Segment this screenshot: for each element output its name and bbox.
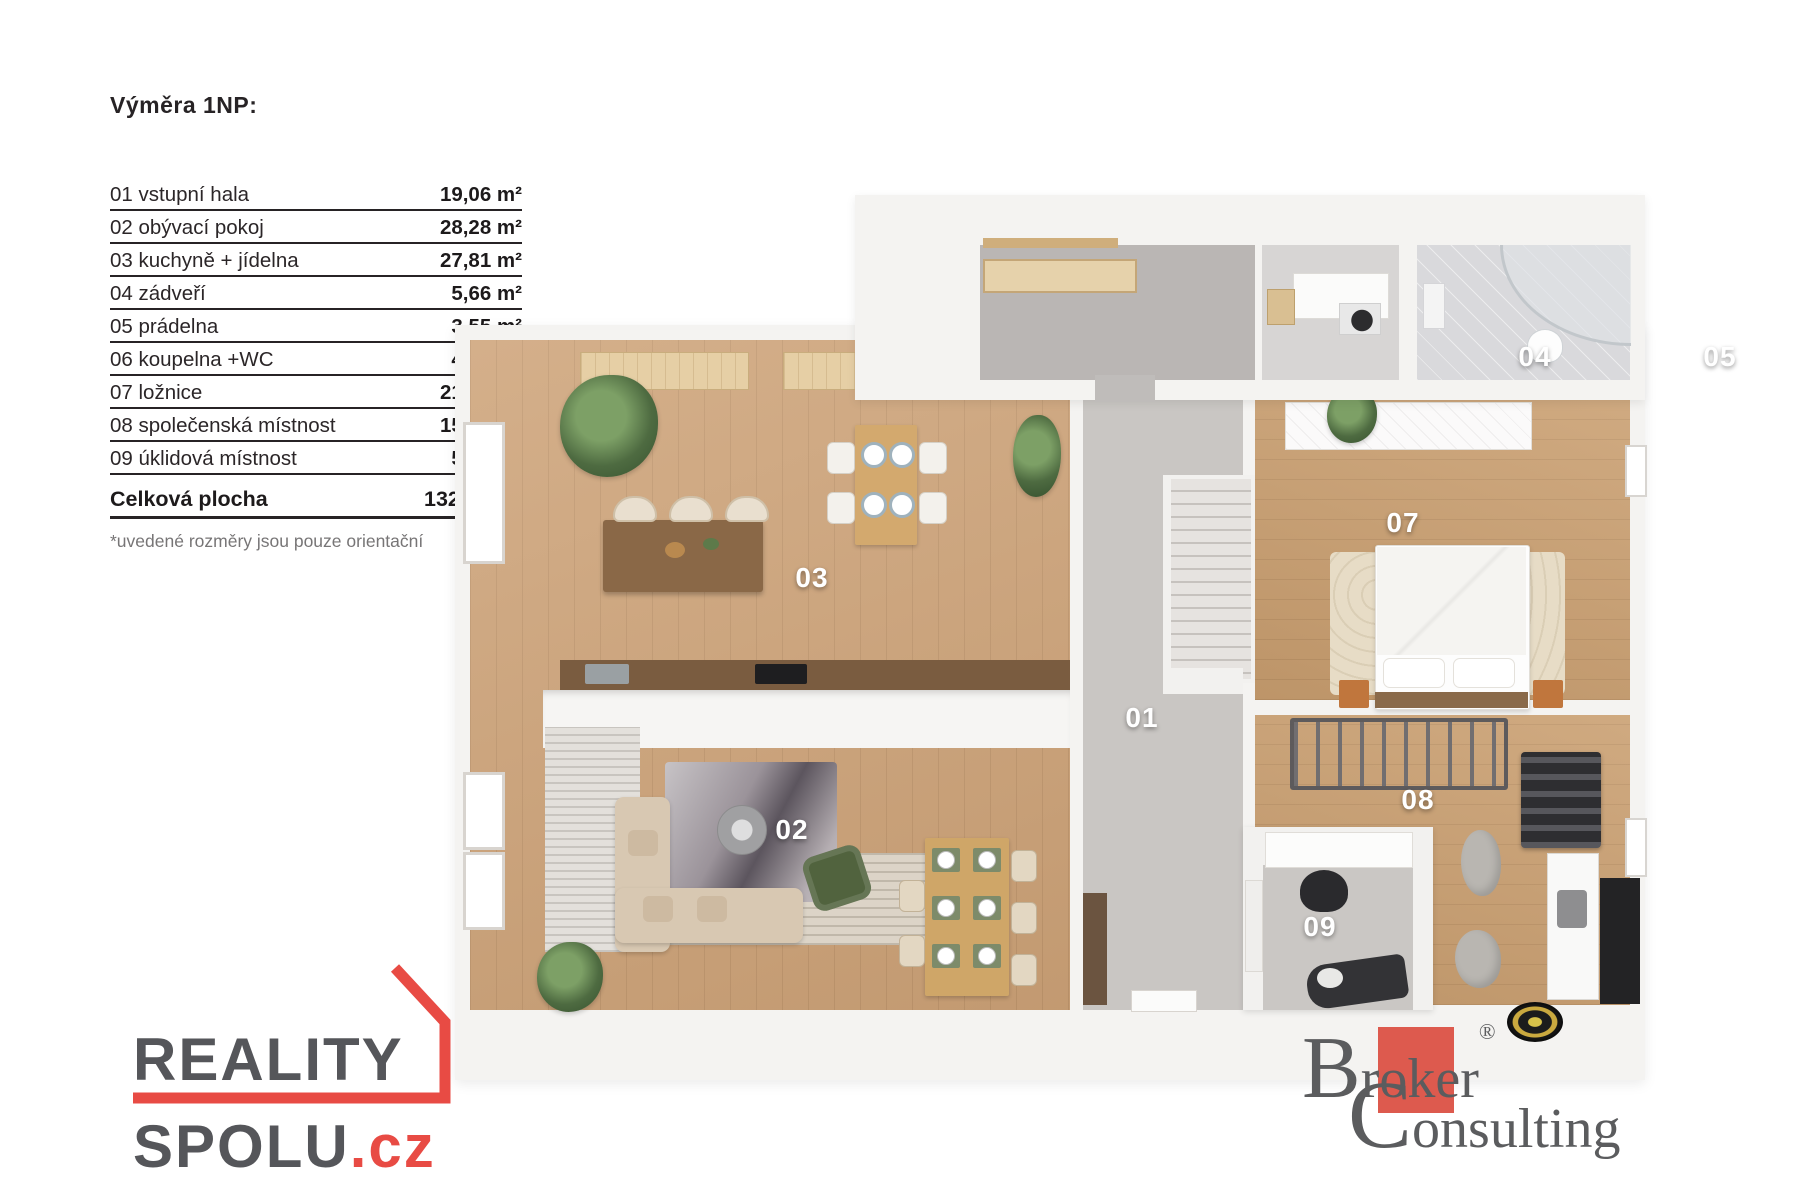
floor-plan: 04 05 06 01 02 03 07 08 09 [455, 190, 1645, 1085]
room-number-04: 04 [1518, 341, 1551, 373]
room-number-09: 09 [1303, 911, 1336, 943]
placemat [932, 896, 960, 920]
dining-chair [827, 492, 855, 524]
cushion [697, 896, 727, 922]
shelf [1245, 880, 1263, 972]
room-label-text: 01 vstupní hala [110, 183, 249, 207]
bathroom-sink [1423, 283, 1445, 329]
bench [983, 259, 1137, 293]
room-label-text: 08 společenská místnost [110, 414, 336, 438]
dining-chair [899, 880, 925, 912]
cooktop [755, 664, 807, 684]
window [1625, 818, 1647, 877]
plate [889, 492, 915, 518]
hamper [1267, 289, 1295, 325]
room-number-03: 03 [795, 562, 828, 594]
legend-title: Výměra 1NP: [110, 92, 257, 119]
staircase [1163, 475, 1255, 683]
entry-strip-walls: 04 05 06 [855, 195, 1645, 400]
room-number-07: 07 [1386, 507, 1419, 539]
ceiling-fan [717, 805, 767, 855]
wardrobe [1285, 402, 1532, 450]
nightstand [1533, 680, 1563, 708]
plate [861, 442, 887, 468]
bike-seat [1317, 968, 1343, 988]
window [1625, 445, 1647, 497]
hall-console [1083, 893, 1107, 1005]
registered-mark: ® [1479, 1019, 1496, 1044]
punch-pad [1557, 890, 1587, 928]
total-label: Celková plocha [110, 487, 268, 512]
dumbbell-rack [1521, 752, 1601, 848]
logo-word-spolu: SPOLU.cz [133, 1112, 436, 1181]
placemat [973, 944, 1001, 968]
kitchen-island [603, 520, 763, 592]
window [463, 772, 505, 850]
fruit-bowl [665, 542, 685, 558]
dining-chair [1011, 954, 1037, 986]
stair-landing [1163, 668, 1243, 694]
plate [861, 492, 887, 518]
logo-word-reality: REALITY [133, 1025, 404, 1094]
room-number-08: 08 [1401, 784, 1434, 816]
pillow [1453, 658, 1515, 688]
coat-rack [983, 238, 1118, 248]
room-label-text: 03 kuchyně + jídelna [110, 249, 299, 273]
dining-chair [827, 442, 855, 474]
kitchen-sink [585, 664, 629, 684]
room-label-text: 06 koupelna +WC [110, 348, 274, 372]
logo-word-spolu-text: SPOLU [133, 1113, 350, 1180]
front-door [1131, 990, 1197, 1012]
room-label-text: 05 prádelna [110, 315, 218, 339]
hall-top-doorway [1095, 375, 1155, 402]
dining-chair [919, 492, 947, 524]
dining-chair [1011, 850, 1037, 882]
broker-consulting-logo: Broker® Consulting [1290, 1015, 1800, 1200]
dining-chair [899, 935, 925, 967]
pull-up-rack [1290, 718, 1508, 790]
washing-machine [1339, 303, 1381, 335]
logo-word-onsulting: onsulting [1412, 1098, 1620, 1160]
bean-bag [1455, 930, 1501, 988]
placemat [973, 848, 1001, 872]
headboard [1375, 692, 1528, 708]
office-chair [1300, 870, 1348, 912]
room-label-text: 09 úklidová místnost [110, 447, 297, 471]
duvet [1377, 547, 1526, 655]
room-label-text: 07 ložnice [110, 381, 202, 405]
placemat [932, 944, 960, 968]
logo-word-consulting: Consulting [1348, 1067, 1621, 1163]
bean-bag [1461, 830, 1501, 896]
cushion [643, 896, 673, 922]
reality-spolu-logo: REALITY SPOLU.cz [100, 940, 500, 1190]
placemat [973, 896, 1001, 920]
placemat [932, 848, 960, 872]
dining-chair [919, 442, 947, 474]
window [463, 852, 505, 930]
logo-letter-c: C [1348, 1061, 1412, 1168]
herb-pot [703, 538, 719, 550]
room-number-02: 02 [775, 814, 808, 846]
kitchen-counter [560, 660, 1070, 690]
window [463, 422, 505, 564]
nightstand [1339, 680, 1369, 708]
plate [889, 442, 915, 468]
room-label-text: 04 zádveří [110, 282, 206, 306]
room-number-01: 01 [1125, 702, 1158, 734]
legend-footnote: *uvedené rozměry jsou pouze orientační [110, 531, 423, 552]
pillow [1383, 658, 1445, 688]
cushion [628, 830, 658, 856]
dining-chair [1011, 902, 1037, 934]
desk [1265, 832, 1413, 868]
logo-tld: .cz [350, 1113, 436, 1180]
tv-panel [1600, 878, 1640, 1004]
room-number-05: 05 [1703, 341, 1736, 373]
room-label-text: 02 obývací pokoj [110, 216, 264, 240]
